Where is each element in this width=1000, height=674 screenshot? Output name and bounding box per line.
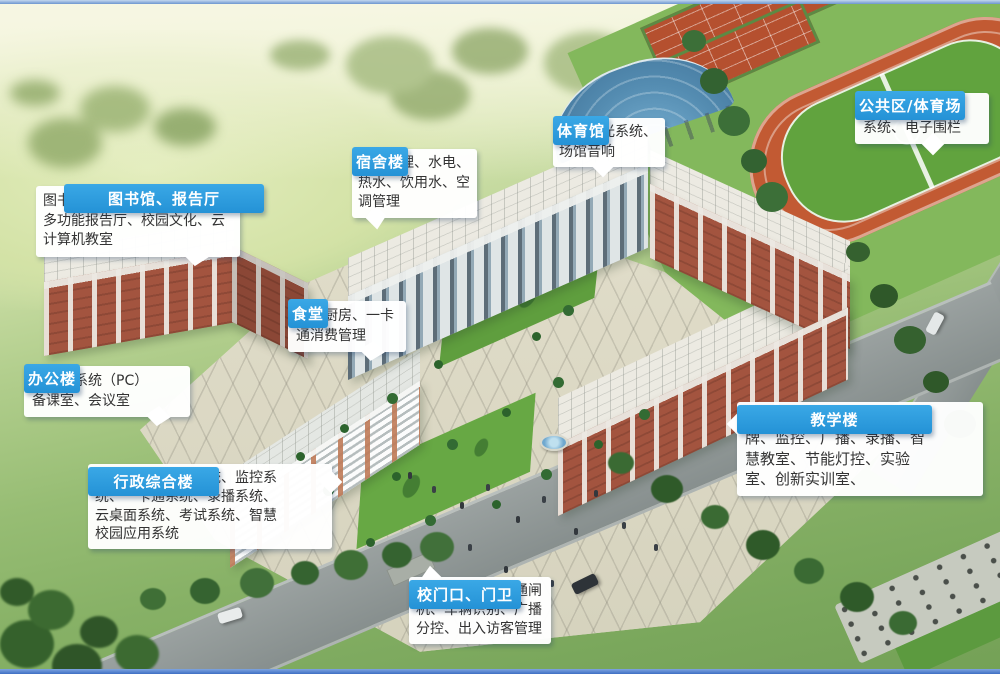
callout-public-stadium-title: 公共区/体育场 <box>855 91 965 120</box>
far-treeline-left <box>10 80 60 106</box>
tree-row-east-road <box>846 242 870 262</box>
campus-aerial-view: 图书馆、报告厅 图书管理系统、电子图书馆、多功能报告厅、校园文化、云计算机教室 … <box>0 0 1000 674</box>
far-treeline-center <box>270 40 330 70</box>
tree-row-track-side <box>682 30 706 52</box>
callout-library-title: 图书馆、报告厅 <box>64 184 264 213</box>
callout-gate-title: 校门口、门卫 <box>409 580 521 609</box>
frame-border-top <box>0 0 1000 4</box>
fountain <box>540 434 568 451</box>
palm-trees <box>296 452 305 461</box>
pedestrians <box>408 472 412 479</box>
callout-cafeteria-title: 食堂 <box>288 299 328 328</box>
callout-gymnasium-title: 体育馆 <box>553 116 609 145</box>
tree-row-west-road <box>140 588 166 610</box>
callout-admin-complex-title: 行政综合楼 <box>88 467 219 496</box>
tree-cluster-bottom-left <box>0 578 34 606</box>
callout-teaching-title: 教学楼 <box>737 405 932 434</box>
frame-border-bottom <box>0 669 1000 674</box>
callout-office-title: 办公楼 <box>24 364 80 393</box>
callout-dormitory-title: 宿舍楼 <box>352 147 408 176</box>
tree-row-south-road <box>608 452 634 474</box>
